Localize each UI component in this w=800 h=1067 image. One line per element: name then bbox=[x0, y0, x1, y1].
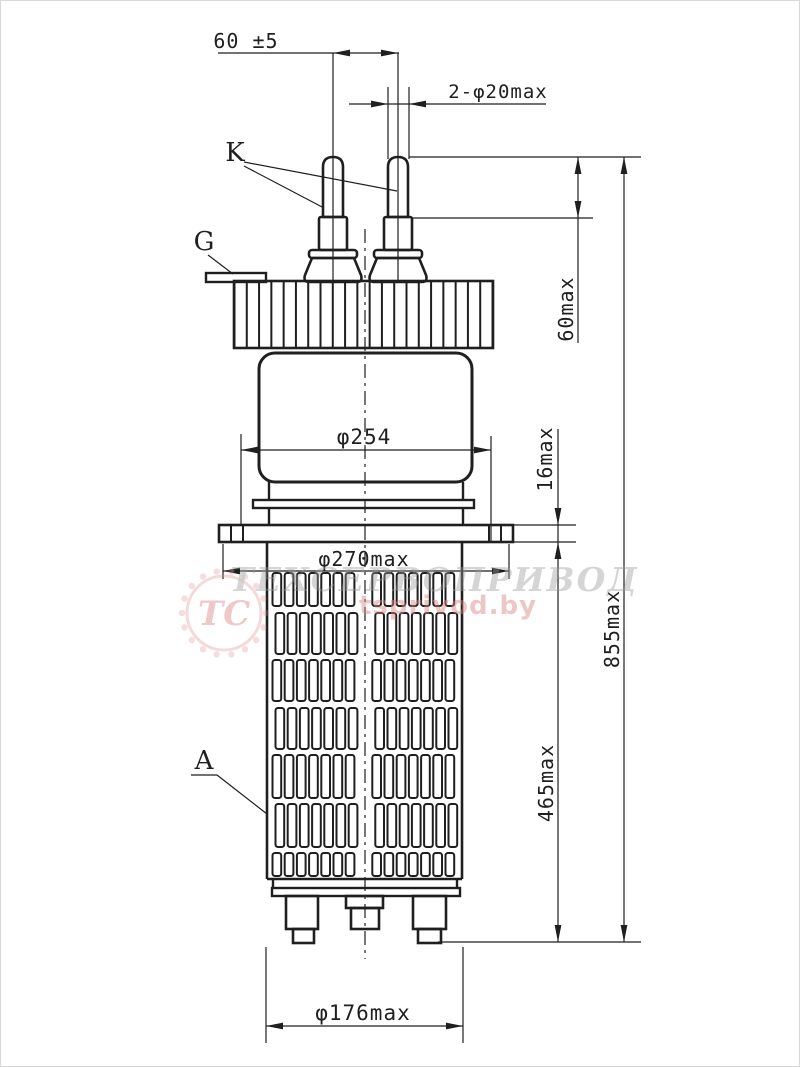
label-anode-A: A bbox=[194, 746, 215, 776]
dim-pin-height: 60max bbox=[554, 276, 578, 341]
dimension-arrowheads bbox=[223, 50, 627, 1030]
watermark-website-text: tsprivod.by bbox=[359, 591, 537, 621]
label-grid-G: G bbox=[194, 227, 215, 257]
dim-pin-diameter: 2-φ20max bbox=[448, 81, 548, 103]
dim-radiator-height: 465max bbox=[534, 744, 558, 822]
dim-flange-thickness: 16max bbox=[533, 426, 557, 491]
drawing-sheet: 60 ±5 2-φ20max φ254 φ270max φ176max 60ma… bbox=[0, 0, 800, 1067]
label-cathode-K: K bbox=[225, 138, 245, 168]
dim-pin-spacing: 60 ±5 bbox=[213, 29, 278, 53]
grid-ring-fins bbox=[234, 281, 493, 348]
watermark-monogram: ТС bbox=[198, 594, 250, 634]
technical-drawing: 60 ±5 2-φ20max φ254 φ270max φ176max 60ma… bbox=[1, 1, 800, 1067]
dim-radiator-diameter: φ176max bbox=[315, 1001, 411, 1025]
dimension-lines bbox=[191, 53, 641, 1043]
dim-total-height: 855max bbox=[600, 590, 624, 668]
dim-body-diameter: φ254 bbox=[337, 425, 392, 449]
